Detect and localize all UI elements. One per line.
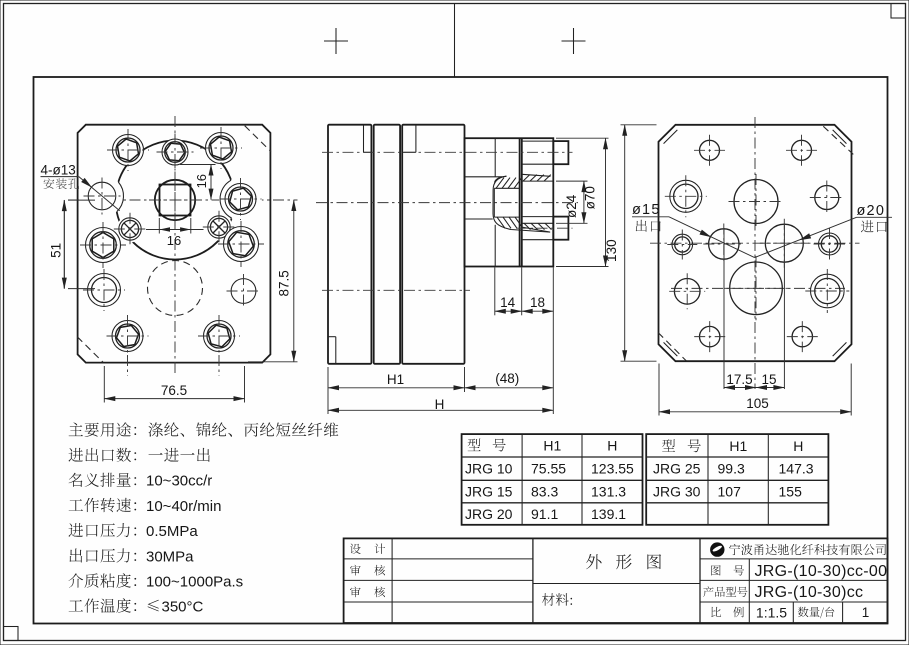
- svg-text:147.3: 147.3: [779, 461, 814, 477]
- svg-text:83.3: 83.3: [531, 484, 558, 500]
- svg-text:ø70: ø70: [583, 186, 598, 209]
- svg-text:ø20: ø20: [857, 203, 886, 219]
- svg-text:JRG 30: JRG 30: [653, 484, 701, 500]
- svg-text:JRG 20: JRG 20: [465, 506, 513, 522]
- svg-text:10~40r/min: 10~40r/min: [146, 498, 221, 515]
- svg-text:JRG 10: JRG 10: [465, 461, 513, 477]
- svg-text:H1: H1: [543, 437, 561, 453]
- svg-text:0.5MPa: 0.5MPa: [146, 523, 198, 540]
- svg-text:JRG 25: JRG 25: [653, 461, 701, 477]
- svg-text:10~30cc/r: 10~30cc/r: [146, 473, 212, 490]
- svg-text:H: H: [793, 438, 803, 454]
- svg-text:H1: H1: [729, 438, 747, 454]
- svg-text:76.5: 76.5: [161, 383, 187, 398]
- svg-text:30MPa: 30MPa: [146, 548, 194, 565]
- svg-text:1:1.5: 1:1.5: [756, 604, 787, 620]
- svg-text:91.1: 91.1: [531, 506, 558, 522]
- svg-text:H: H: [435, 397, 445, 412]
- svg-text:ø24: ø24: [564, 194, 579, 218]
- svg-text:H1: H1: [387, 372, 404, 387]
- svg-text:51: 51: [49, 243, 64, 258]
- svg-text:17.5: 17.5: [726, 372, 752, 387]
- svg-text:87.5: 87.5: [276, 270, 291, 296]
- svg-text:15: 15: [761, 372, 776, 387]
- svg-text:107: 107: [718, 484, 742, 500]
- svg-text:16: 16: [167, 233, 181, 248]
- svg-text:75.55: 75.55: [531, 461, 566, 477]
- svg-text:4-ø13: 4-ø13: [41, 163, 76, 178]
- svg-text:JRG 15: JRG 15: [465, 484, 513, 500]
- svg-text:350°C: 350°C: [162, 598, 204, 615]
- svg-text:155: 155: [779, 484, 803, 500]
- svg-text:16: 16: [194, 174, 209, 188]
- svg-text:ø15: ø15: [632, 202, 661, 218]
- svg-text:105: 105: [746, 396, 769, 411]
- svg-text:139.1: 139.1: [591, 506, 626, 522]
- svg-text:131.3: 131.3: [591, 484, 626, 500]
- svg-text:14: 14: [500, 295, 516, 310]
- svg-text:100~1000Pa.s: 100~1000Pa.s: [146, 573, 243, 590]
- svg-text:123.55: 123.55: [591, 461, 634, 477]
- svg-text:99.3: 99.3: [718, 461, 745, 477]
- svg-text:1: 1: [862, 605, 870, 620]
- svg-text:JRG-(10-30)cc-00: JRG-(10-30)cc-00: [755, 563, 888, 580]
- svg-text:H: H: [607, 437, 617, 453]
- svg-text:JRG-(10-30)cc: JRG-(10-30)cc: [755, 584, 864, 601]
- svg-text:130: 130: [604, 239, 619, 262]
- svg-text:18: 18: [530, 295, 545, 310]
- svg-text:(48): (48): [495, 371, 519, 386]
